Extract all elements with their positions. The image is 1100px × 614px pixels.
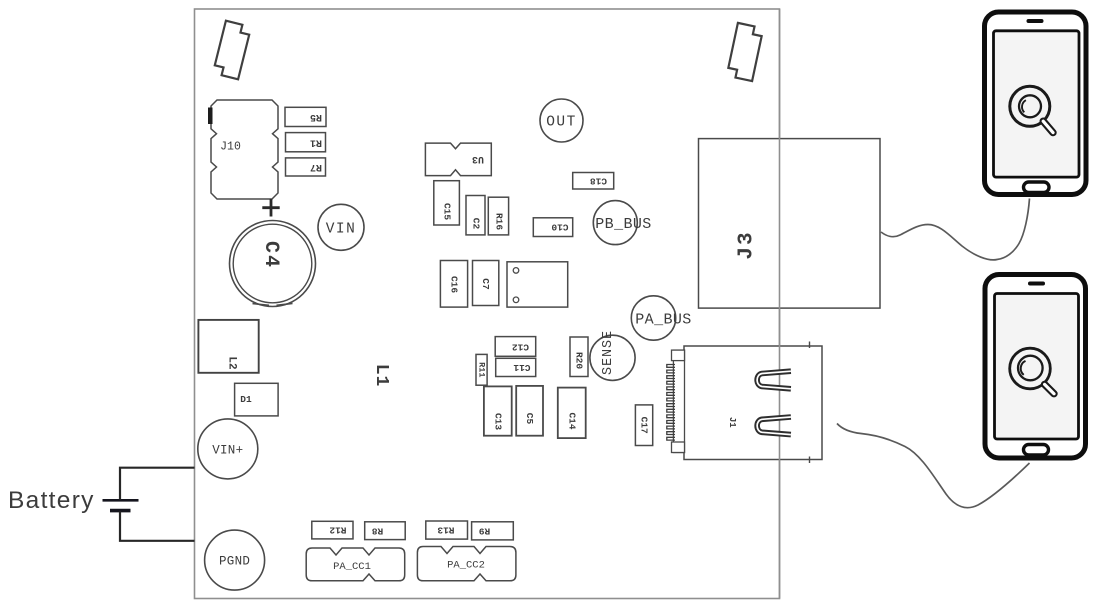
svg-text:J10: J10	[220, 141, 241, 154]
svg-text:L2: L2	[226, 356, 238, 369]
svg-text:C18: C18	[590, 176, 607, 187]
svg-text:U3: U3	[472, 153, 484, 164]
svg-text:PB_BUS: PB_BUS	[595, 216, 651, 233]
svg-text:C4: C4	[259, 241, 282, 269]
svg-text:C12: C12	[512, 342, 529, 353]
svg-text:L1: L1	[371, 364, 391, 388]
svg-text:PA_BUS: PA_BUS	[635, 312, 691, 329]
svg-text:J3: J3	[736, 230, 759, 259]
svg-text:R12: R12	[329, 525, 346, 536]
svg-text:R5: R5	[310, 111, 322, 122]
svg-text:C5: C5	[524, 413, 535, 425]
svg-text:C7: C7	[480, 278, 491, 290]
svg-text:PGND: PGND	[219, 555, 250, 569]
svg-text:OUT: OUT	[546, 115, 577, 131]
svg-text:C14: C14	[566, 412, 577, 429]
svg-text:C2: C2	[470, 218, 481, 230]
svg-text:D1: D1	[240, 394, 252, 405]
svg-text:C13: C13	[492, 413, 503, 430]
svg-text:C17: C17	[639, 417, 650, 434]
svg-text:C16: C16	[449, 276, 460, 293]
svg-text:R20: R20	[574, 352, 585, 369]
svg-text:R9: R9	[479, 526, 491, 537]
svg-text:PA_CC2: PA_CC2	[447, 560, 485, 572]
svg-text:R16: R16	[493, 213, 504, 230]
svg-text:R11: R11	[477, 362, 487, 377]
svg-text:C10: C10	[551, 221, 568, 232]
svg-text:C11: C11	[513, 362, 530, 373]
svg-text:J1: J1	[727, 417, 737, 428]
svg-text:VIN: VIN	[326, 222, 357, 238]
svg-text:R8: R8	[372, 526, 384, 537]
svg-text:R1: R1	[310, 136, 322, 147]
svg-text:C15: C15	[442, 203, 453, 220]
svg-text:R7: R7	[310, 161, 322, 172]
svg-text:R13: R13	[437, 525, 454, 536]
svg-text:SENSE: SENSE	[601, 330, 616, 375]
svg-text:PA_CC1: PA_CC1	[333, 561, 371, 573]
svg-text:Battery: Battery	[8, 487, 95, 514]
svg-text:VIN+: VIN+	[212, 444, 243, 458]
